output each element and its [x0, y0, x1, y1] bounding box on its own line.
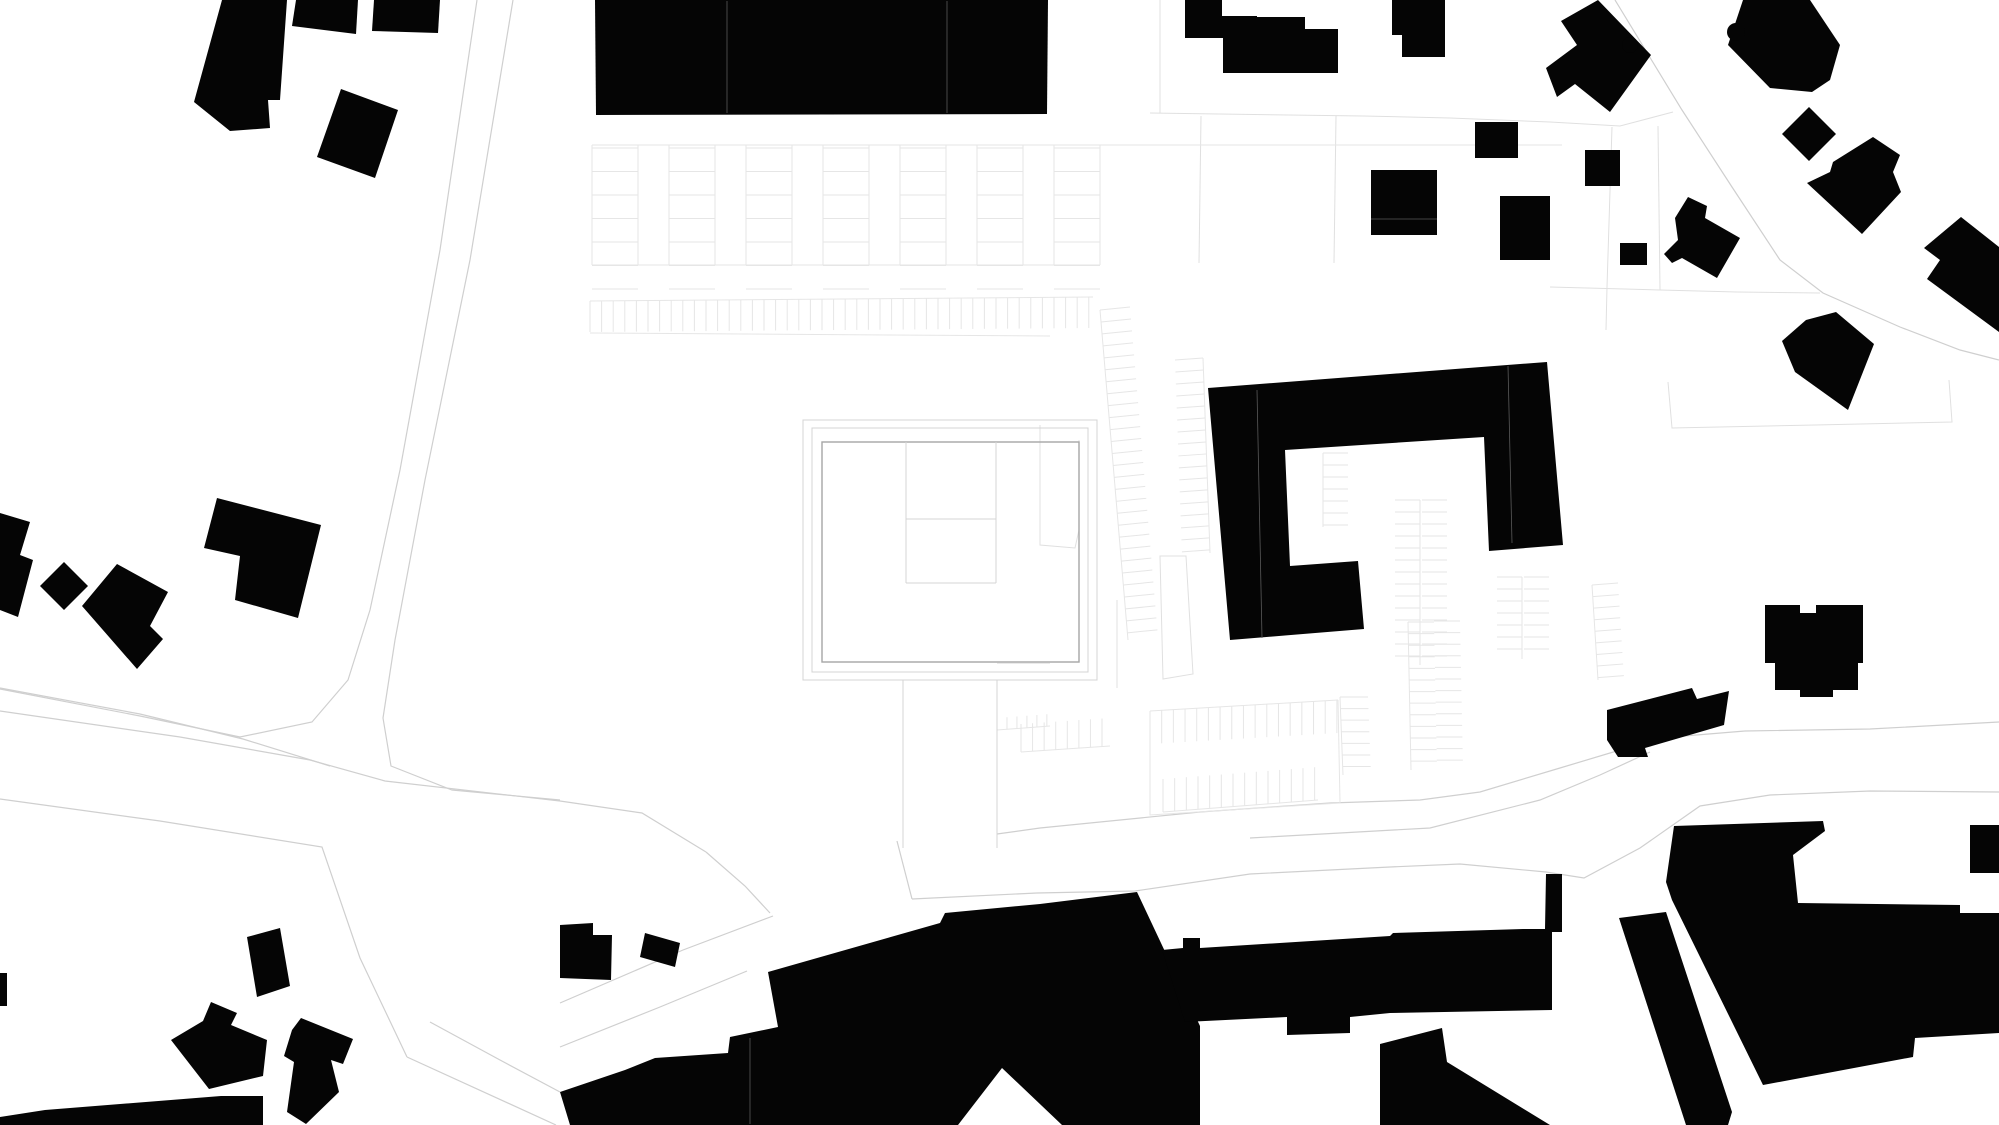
site-plan-map [0, 0, 1999, 1125]
building-ne-cross-house-bump [1622, 37, 1638, 53]
building-e-house-b [1765, 605, 1863, 697]
building-square-b [1371, 170, 1437, 235]
building-topleft-wing-b [372, 0, 440, 33]
building-square-a [1475, 122, 1518, 158]
site-plan-svg [0, 0, 1999, 1125]
building-square-c [1500, 196, 1550, 260]
building-square-d [1585, 150, 1620, 186]
building-long-bar [595, 0, 1048, 115]
building-w-sliver [0, 973, 7, 1006]
building-rect-e [1620, 243, 1647, 265]
building-ne-big-house-bump [1727, 23, 1745, 41]
building-se-sliver [1970, 825, 1999, 873]
